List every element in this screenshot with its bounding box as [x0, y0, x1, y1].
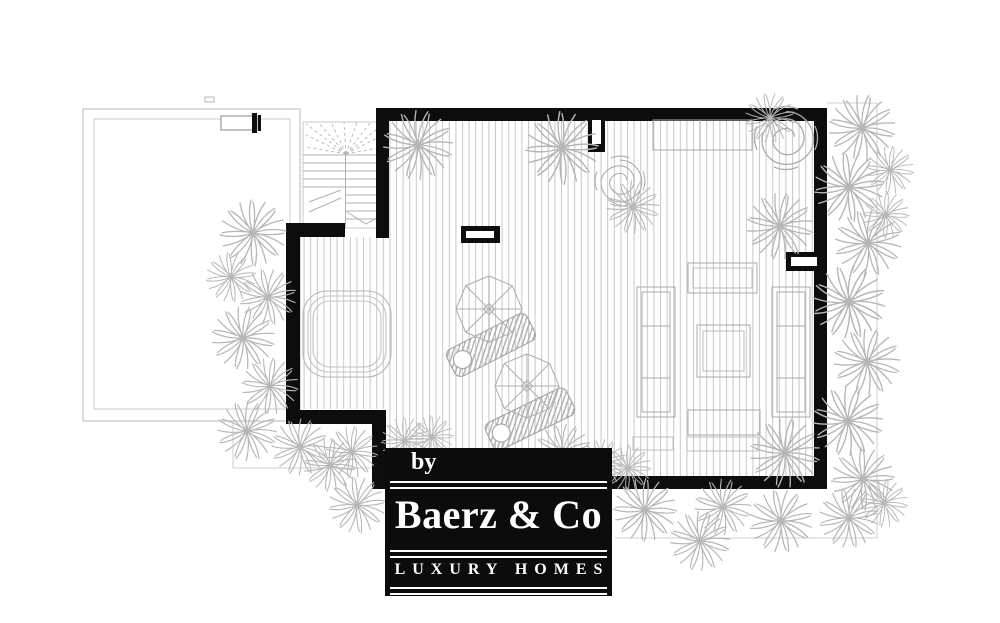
roof-window-marker-top — [461, 226, 500, 243]
logo-brand-text: Baerz & Co — [385, 491, 612, 538]
roof-window-marker-right-wall — [786, 252, 826, 271]
lower-terrace-outline — [83, 109, 300, 421]
logo-rule — [390, 587, 607, 595]
screenshot-canvas: by Baerz & Co LUXURY HOMES — [0, 0, 1000, 623]
logo-rule — [390, 550, 607, 558]
watermark-logo: by Baerz & Co LUXURY HOMES — [385, 448, 612, 596]
staircase — [303, 122, 388, 228]
logo-rule — [390, 481, 607, 489]
logo-by-text: by — [411, 449, 436, 476]
parapet-vent-marker — [221, 113, 261, 133]
logo-tagline-text: LUXURY HOMES — [385, 561, 612, 579]
roof-tick-marker — [205, 97, 214, 102]
wall-stub-marker-top-wall — [588, 120, 605, 152]
stair-dashed-upper-flight — [306, 122, 383, 154]
stair-treads — [303, 155, 388, 228]
